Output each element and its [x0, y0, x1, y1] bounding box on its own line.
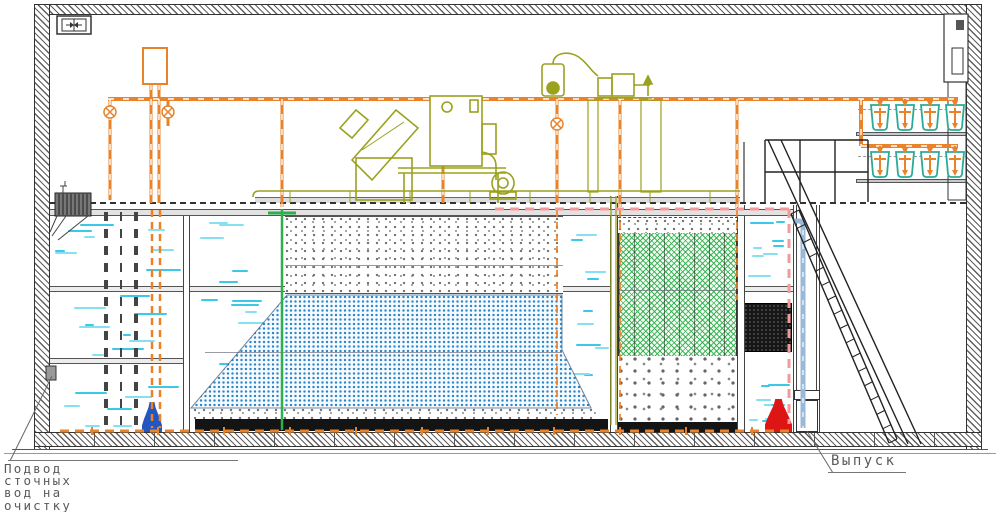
outlet-label: Выпуск — [831, 453, 897, 469]
outlet-label-underline — [828, 472, 906, 473]
blower-unit — [896, 105, 914, 130]
inlet-label-line4: очистку — [4, 500, 72, 512]
inlet-label: Подвод сточных вод на очистку — [4, 463, 72, 512]
blower-unit — [921, 152, 939, 177]
stair-rung — [858, 367, 866, 371]
stair-rung — [846, 339, 854, 343]
vent-fan-icon — [57, 16, 91, 34]
recirculation-pipe — [495, 209, 789, 424]
blower-unit — [946, 105, 964, 130]
left-tank-ladder — [106, 212, 136, 426]
valve-icon — [104, 106, 563, 130]
drive-motor — [542, 53, 652, 98]
drawing-overlay — [0, 0, 1000, 512]
outlet-pipe — [793, 221, 803, 428]
stair-rung — [791, 210, 799, 214]
stair-rung — [852, 353, 860, 357]
stair-rung — [809, 253, 817, 257]
blower-unit — [871, 105, 889, 130]
stair-rung — [871, 396, 879, 400]
blower-unit — [921, 105, 939, 130]
inlet-screen-unit — [50, 181, 91, 240]
stair-rung — [889, 439, 897, 443]
leader-lines — [10, 376, 833, 473]
stair-rung — [883, 425, 891, 429]
treatment-plant-section-drawing: Подвод сточных вод на очистку Выпуск — [0, 0, 1000, 512]
stair-rung — [840, 325, 848, 329]
stair-rung — [877, 410, 885, 414]
stair-rung — [834, 310, 842, 314]
stair-rung — [822, 282, 830, 286]
stair-rung — [828, 296, 836, 300]
drain-pipe-green — [268, 209, 296, 430]
blower-unit — [871, 152, 889, 177]
air-pipe-network — [60, 48, 958, 435]
stair-rungs — [791, 210, 897, 443]
blue-bed-outline — [191, 295, 591, 408]
stair-rung — [816, 267, 824, 271]
expansion-tank — [143, 48, 167, 84]
screen-machine — [340, 96, 661, 425]
blower-unit — [946, 152, 964, 177]
staircase — [744, 140, 921, 444]
blower-unit — [896, 152, 914, 177]
stair-rung — [865, 382, 873, 386]
